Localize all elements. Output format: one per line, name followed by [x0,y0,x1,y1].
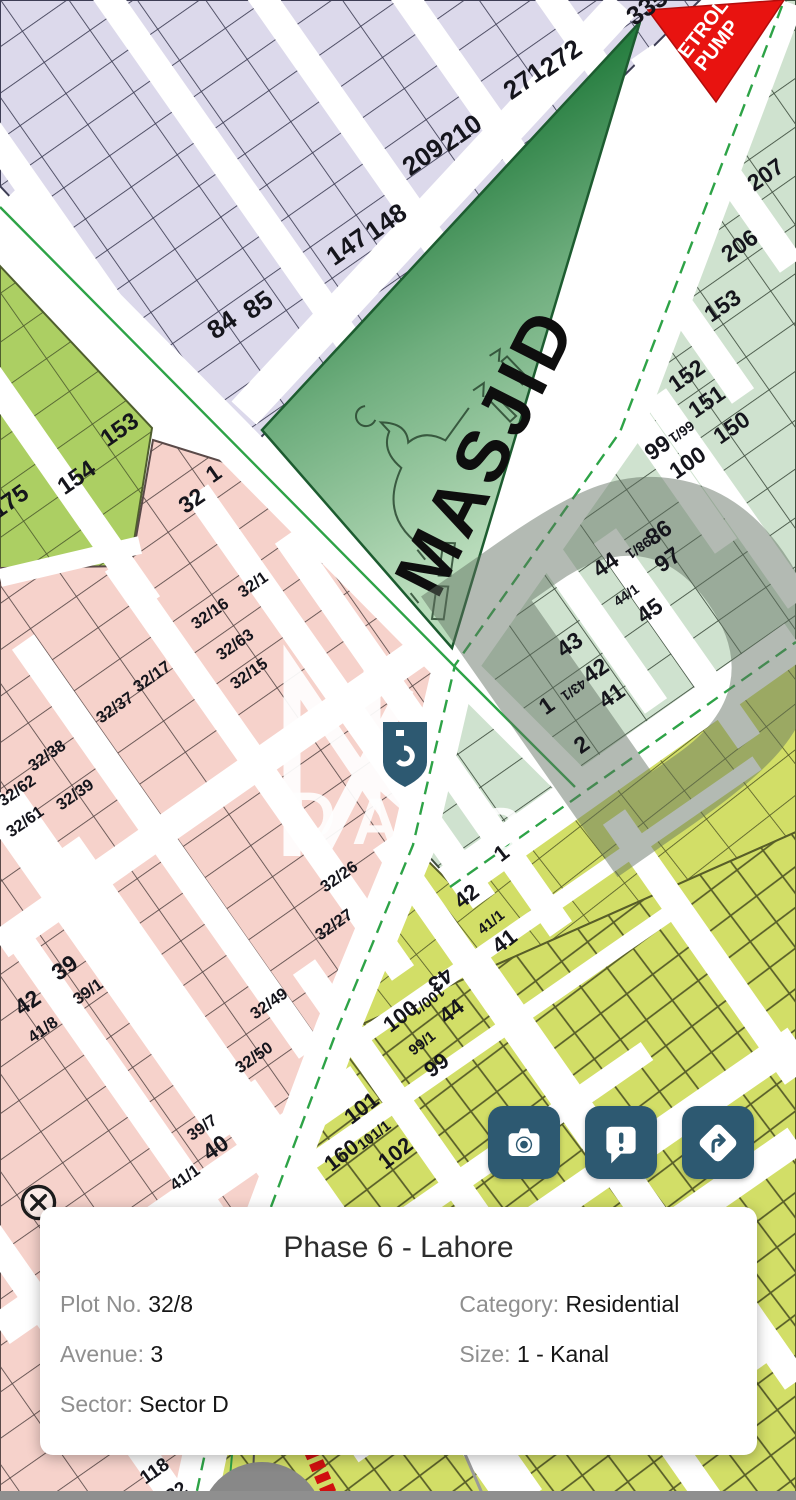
plot-no-label: Plot No. [60,1291,148,1317]
category-value: Residential [566,1291,680,1317]
watermark-letter: D [288,778,336,852]
category-field: Category: Residential [459,1279,737,1329]
plot-no-value: 32/8 [148,1291,193,1317]
camera-button[interactable] [488,1106,560,1179]
watermark-letter: A [352,784,400,858]
plot-no-field: Plot No. 32/8 [60,1279,459,1329]
plot-info-card: Phase 6 - Lahore Plot No. 32/8 Category:… [40,1207,757,1455]
camera-icon [498,1117,550,1169]
feedback-icon [595,1117,647,1169]
directions-icon [692,1117,744,1169]
size-field: Size: 1 - Kanal [459,1329,737,1379]
card-fields: Plot No. 32/8 Category: Residential Aven… [60,1279,737,1429]
size-value: 1 - Kanal [517,1341,609,1367]
card-title: Phase 6 - Lahore [60,1231,737,1265]
bottom-bar [0,1491,796,1500]
sector-value: Sector D [139,1391,228,1417]
directions-button[interactable] [682,1106,754,1179]
sector-label: Sector: [60,1391,139,1417]
size-label: Size: [459,1341,517,1367]
app-screen: MASJID PETROL PUMP D D A S 84 85 147 148… [0,0,796,1500]
map-action-buttons [488,1106,754,1179]
avenue-value: 3 [150,1341,163,1367]
avenue-label: Avenue: [60,1341,150,1367]
sector-field: Sector: Sector D [60,1379,459,1429]
avenue-field: Avenue: 3 [60,1329,459,1379]
feedback-button[interactable] [585,1106,657,1179]
category-label: Category: [459,1291,565,1317]
